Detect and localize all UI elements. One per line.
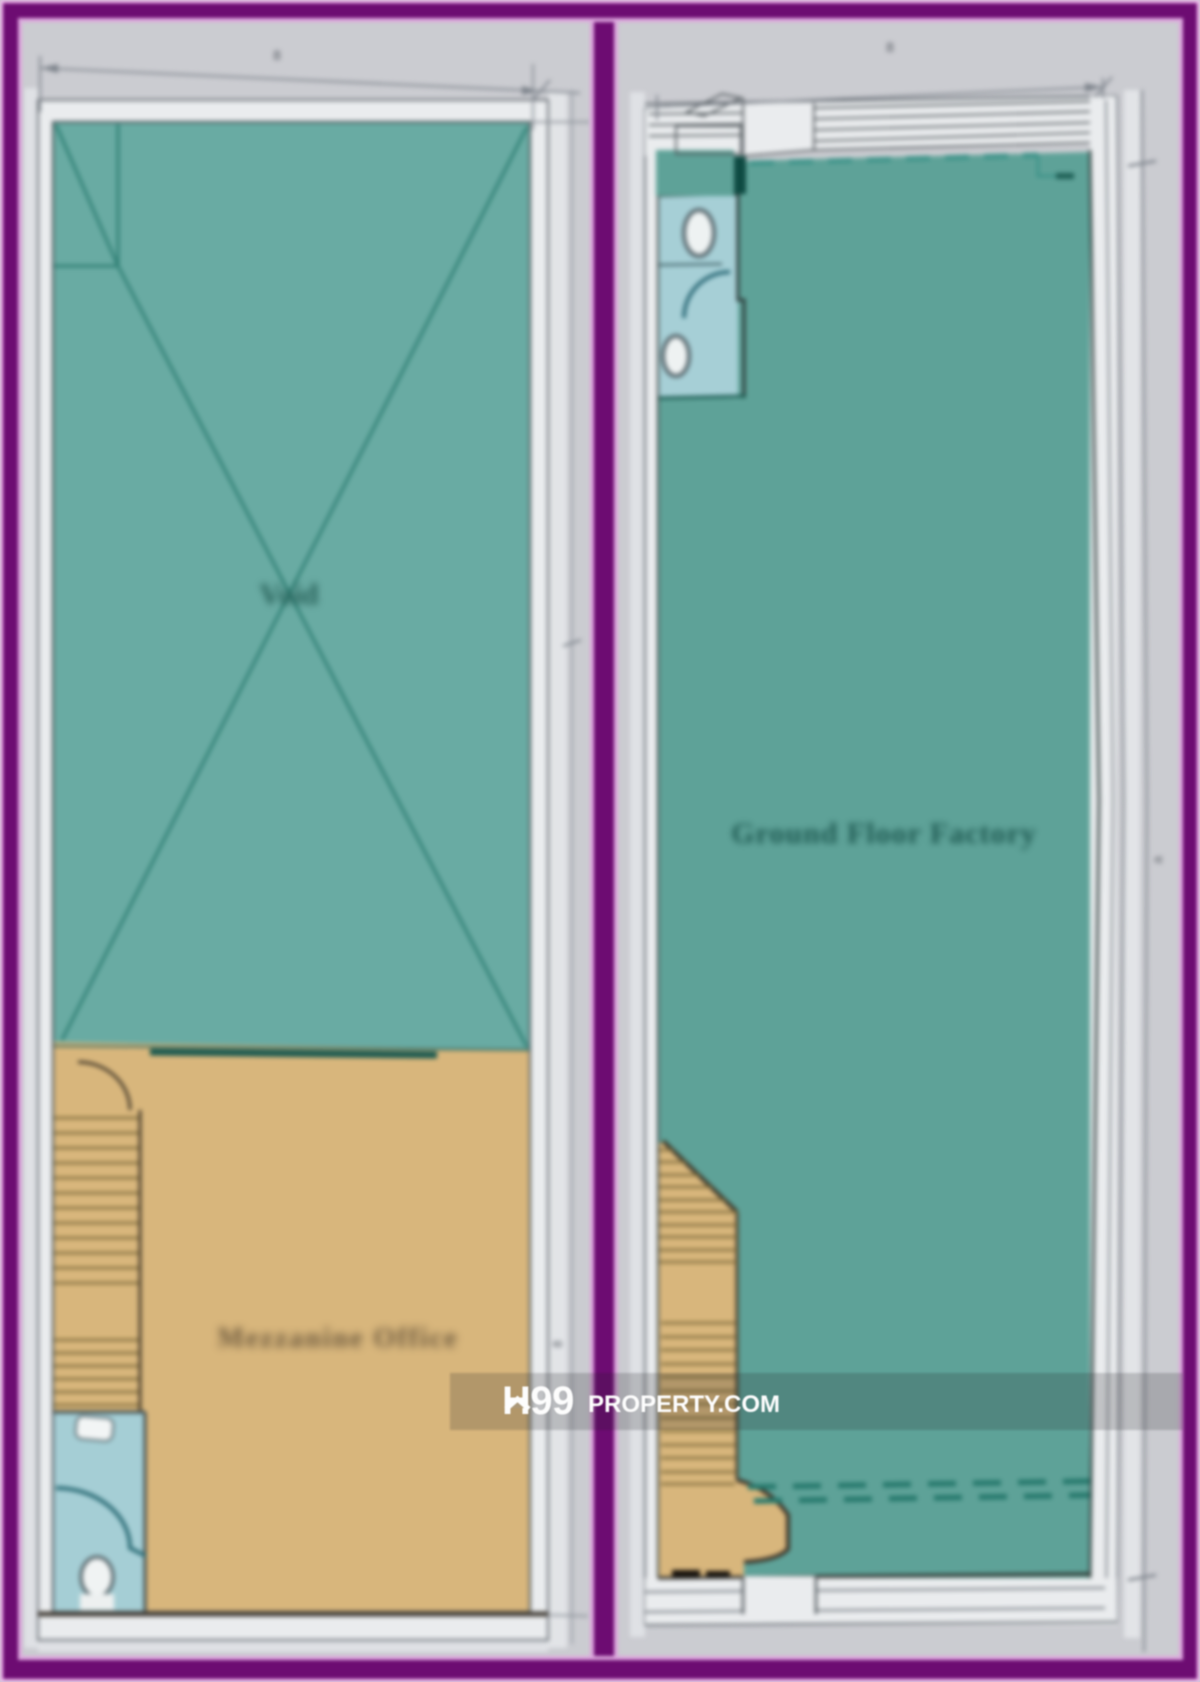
svg-text:PROPERTY.COM: PROPERTY.COM bbox=[588, 1391, 780, 1418]
svg-text:Void: Void bbox=[260, 578, 319, 611]
svg-text:8: 8 bbox=[550, 1340, 565, 1347]
svg-text:Mezzanine Office: Mezzanine Office bbox=[217, 1323, 458, 1354]
svg-text:a: a bbox=[1149, 856, 1165, 864]
svg-text:8: 8 bbox=[886, 39, 894, 55]
svg-text:Ground Floor Factory: Ground Floor Factory bbox=[731, 817, 1037, 850]
svg-text:8: 8 bbox=[273, 47, 281, 63]
